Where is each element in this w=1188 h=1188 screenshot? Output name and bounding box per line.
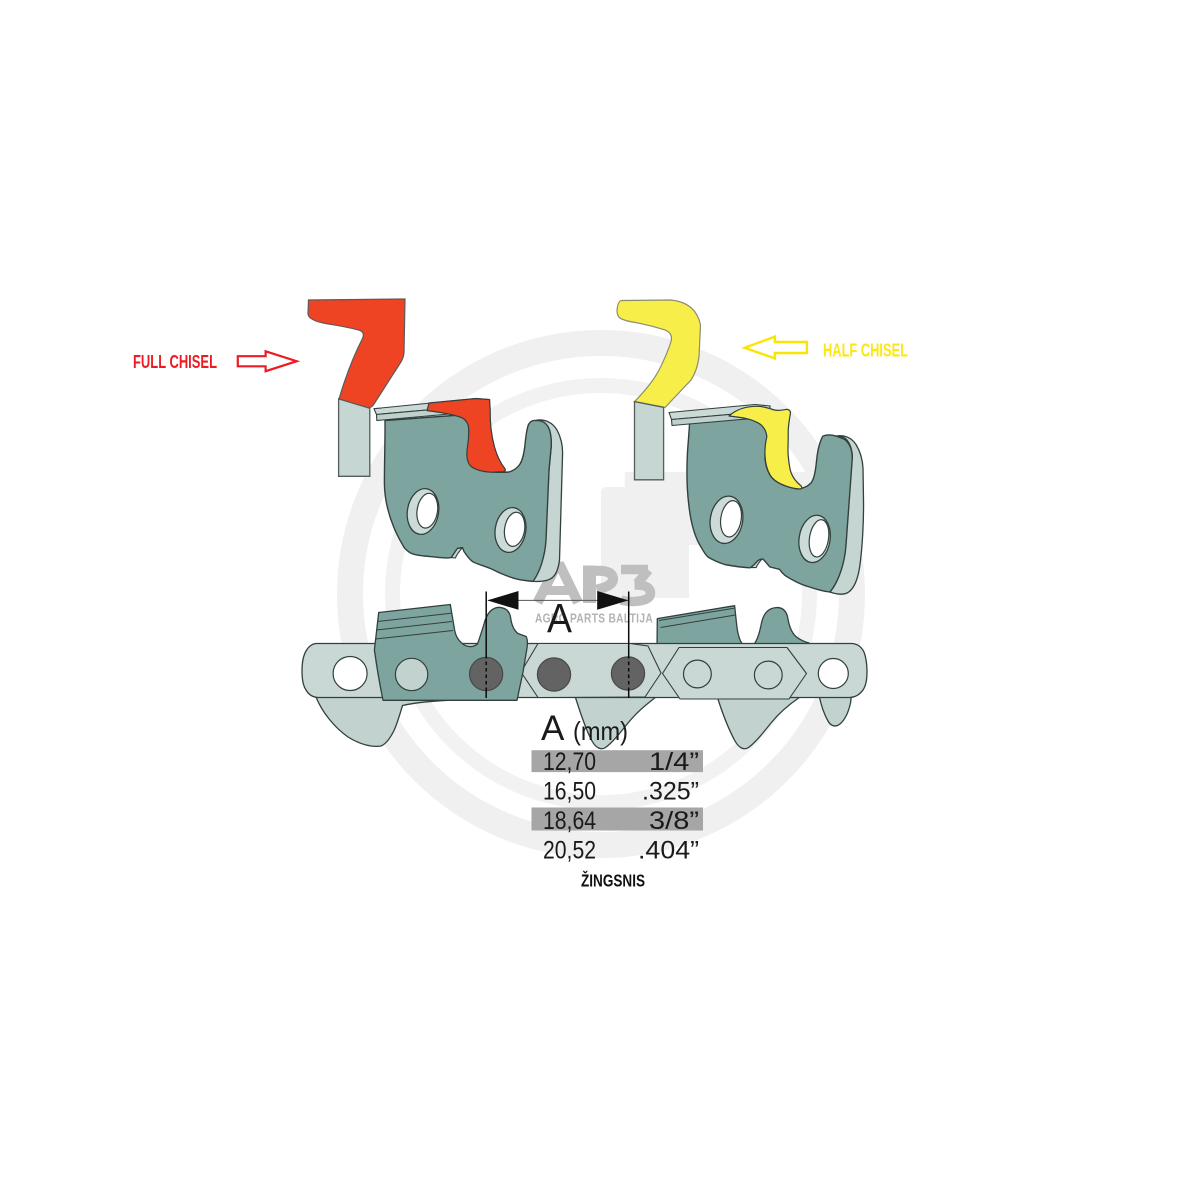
svg-text:HALF CHISEL: HALF CHISEL xyxy=(823,340,908,361)
svg-text:16,50: 16,50 xyxy=(543,778,596,806)
svg-text:(mm): (mm) xyxy=(573,716,628,746)
svg-text:20,52: 20,52 xyxy=(543,837,596,865)
svg-text:A: A xyxy=(547,595,573,641)
svg-text:3/8”: 3/8” xyxy=(649,807,699,835)
svg-text:FULL CHISEL: FULL CHISEL xyxy=(133,351,217,372)
svg-text:12,70: 12,70 xyxy=(543,748,596,776)
svg-text:.325”: .325” xyxy=(642,778,699,806)
svg-text:.404”: .404” xyxy=(638,837,699,865)
svg-text:A: A xyxy=(541,709,565,748)
svg-text:1/4”: 1/4” xyxy=(649,748,699,776)
svg-text:18,64: 18,64 xyxy=(543,807,596,835)
svg-text:ŽINGSNIS: ŽINGSNIS xyxy=(581,870,645,891)
